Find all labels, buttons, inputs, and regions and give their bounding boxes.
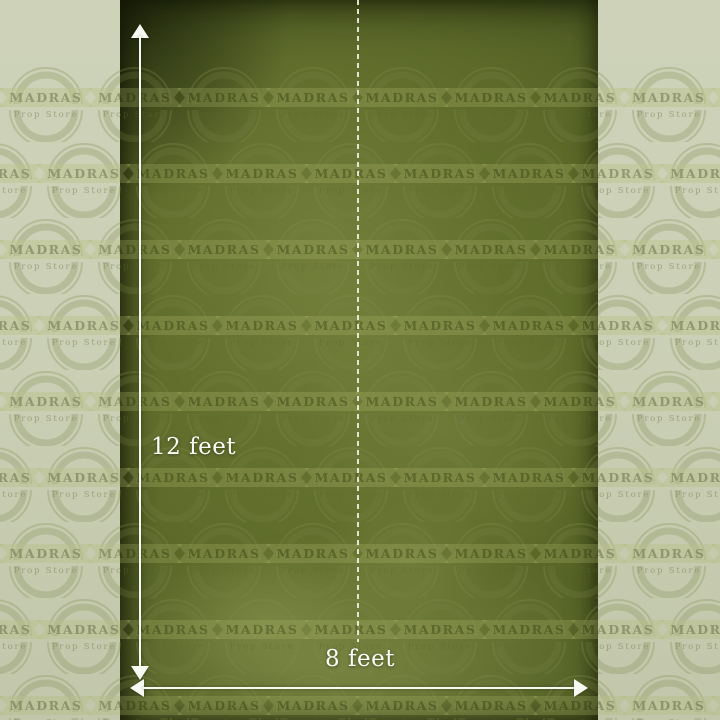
height-dimension-label: 12 feet [151, 434, 236, 460]
backdrop-texture [120, 0, 598, 720]
height-arrow-line [139, 36, 141, 669]
arrow-right-icon [574, 679, 588, 697]
left-margin [0, 0, 120, 720]
right-margin [598, 0, 720, 720]
backdrop-product-image: MADRASProp StoreMADRASProp StoreMADRASPr… [0, 0, 720, 720]
width-dimension-label: 8 feet [325, 646, 395, 672]
width-arrow-line [143, 687, 575, 689]
center-dashed-line [357, 0, 359, 642]
arrow-down-icon [131, 666, 149, 680]
arrow-left-icon [130, 679, 144, 697]
backdrop-canvas [120, 0, 598, 720]
